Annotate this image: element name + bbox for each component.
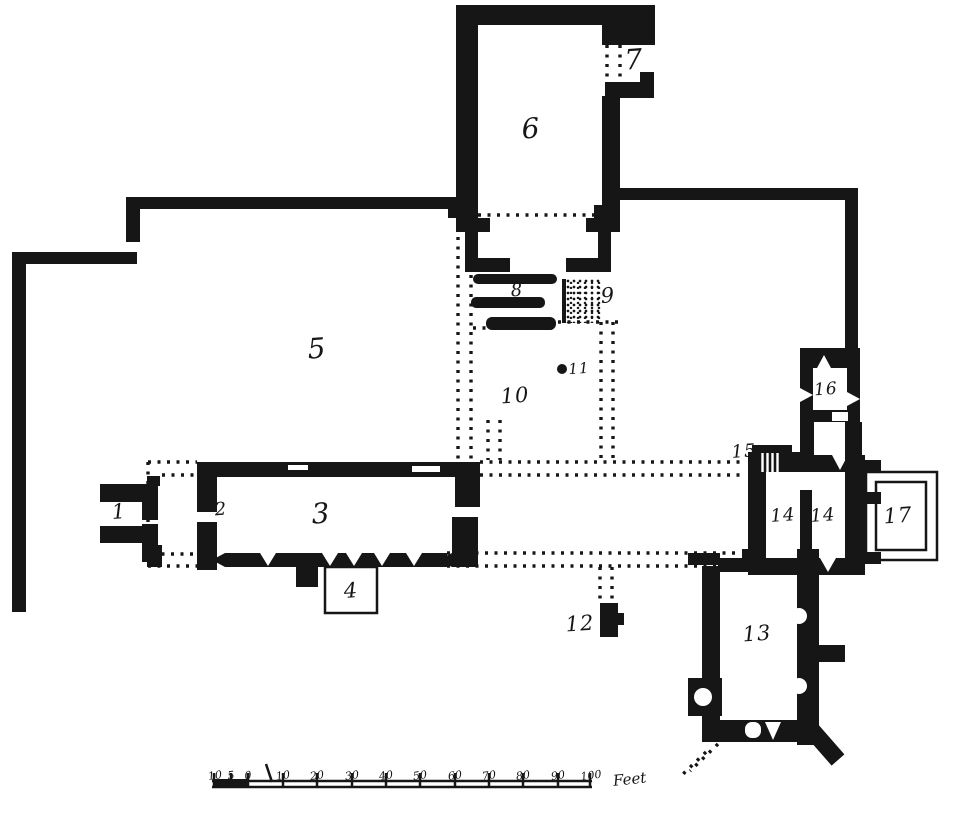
walls-group [12, 5, 937, 760]
scale-tick-label: 50 [412, 769, 427, 782]
scale-tick-label: 10 [275, 769, 290, 782]
room-label-14-west: 14 [770, 506, 796, 526]
stair-hatching [760, 452, 780, 472]
tower-walls [688, 549, 845, 760]
pillar-dot [557, 364, 567, 374]
scale-tick-label: 40 [378, 769, 393, 782]
scale-tick-label: 80 [515, 769, 530, 782]
scale-tick-label: 30 [344, 769, 359, 782]
room-label-3: 3 [311, 499, 332, 528]
scale-unit-label: Feet [612, 769, 647, 790]
scale-tick-label: 0 [244, 770, 252, 782]
room-label-9: 9 [600, 285, 616, 307]
rubble-area [562, 279, 602, 323]
scale-tick-label: 100 [580, 769, 602, 783]
scale-tick-label: 20 [309, 769, 324, 782]
scale-tick-label: 90 [550, 769, 565, 782]
room-label-17: 17 [883, 505, 913, 528]
room-label-5: 5 [307, 334, 328, 363]
room-label-6: 6 [521, 114, 542, 143]
precinct-walls [12, 188, 858, 612]
room-label-1: 1 [111, 501, 127, 523]
room-label-7: 7 [624, 45, 645, 74]
room-label-16: 16 [814, 381, 839, 400]
room-label-13: 13 [742, 623, 772, 646]
room-label-14-east: 14 [810, 506, 836, 526]
room-label-10: 10 [500, 385, 530, 408]
room-label-2: 2 [214, 501, 228, 520]
scale-bar [212, 764, 592, 788]
dotted-lines-group [148, 45, 744, 775]
feature-12 [600, 603, 624, 637]
scale-tick-label: 60 [447, 769, 462, 782]
scale-tick-label: 70 [481, 769, 496, 782]
scale-tick-label: 10 [207, 769, 222, 782]
room-label-12: 12 [565, 613, 595, 636]
room-label-15: 15 [731, 442, 757, 462]
floor-plan: 1 2 3 4 5 6 7 8 9 10 11 12 13 14 14 15 1… [0, 0, 957, 816]
cell-16-walls [800, 348, 862, 472]
room-label-8: 8 [510, 282, 524, 301]
scale-tick-label: 5 [227, 770, 235, 782]
chancel-step-walls [456, 218, 620, 272]
room-label-4: 4 [343, 580, 359, 602]
room-label-11: 11 [568, 361, 590, 377]
floor-plan-drawing [0, 0, 957, 816]
